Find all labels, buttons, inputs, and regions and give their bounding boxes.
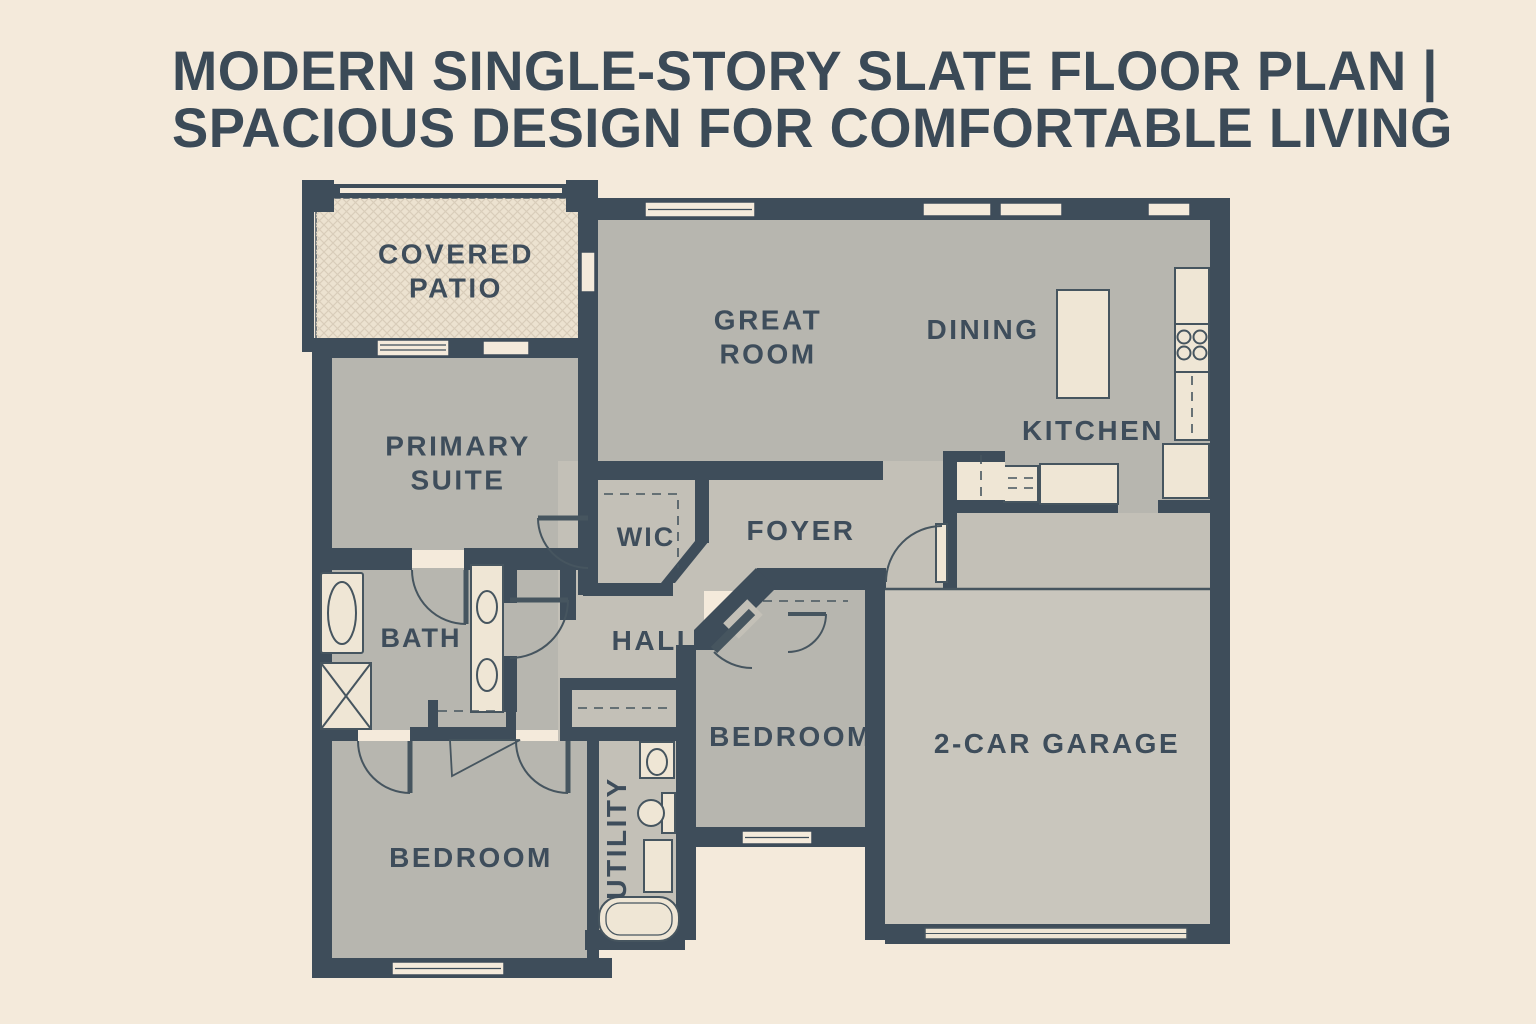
room-fill-mud-hall <box>943 513 1210 589</box>
wall-wic-right <box>695 461 709 543</box>
wall-bedroom-middle-top <box>757 568 886 590</box>
kitchen-cabinet-upper <box>1175 268 1209 324</box>
window-primary-suite <box>483 341 529 355</box>
room-label-kitchen: KITCHEN <box>1022 414 1164 448</box>
wall-wic-bottom <box>583 583 673 596</box>
wall-left <box>312 338 332 978</box>
room-label-primary-suite: PRIMARY SUITE <box>385 429 531 496</box>
wall-kitchen-bottom-stub <box>1158 500 1210 513</box>
wall-bedroom-middle-left <box>676 645 696 940</box>
page-title-line2: SPACIOUS DESIGN FOR COMFORTABLE LIVING <box>172 99 1453 156</box>
wall-vanity-a <box>503 565 517 603</box>
utility-counter <box>644 840 672 892</box>
wall-garage-left <box>865 568 885 940</box>
dishwasher <box>1004 466 1038 502</box>
room-label-hall: HALL <box>612 624 697 658</box>
wall-right <box>1210 198 1230 944</box>
floor-plan-page: MODERN SINGLE-STORY SLATE FLOOR PLAN | S… <box>0 0 1536 1024</box>
room-label-bedroom-left: BEDROOM <box>389 841 553 875</box>
patio-sliding-door <box>377 340 449 356</box>
wall-bath-bottom-c <box>568 727 676 741</box>
room-label-great-room: GREAT ROOM <box>714 303 822 370</box>
wall-linen-left <box>560 678 572 741</box>
window-great-room-left <box>581 252 595 292</box>
patio-screen-line <box>340 188 562 193</box>
wall-suite-top <box>312 338 598 358</box>
kitchen-counter <box>1040 464 1118 504</box>
wall-pantry-top <box>943 451 1005 462</box>
toilet <box>640 742 674 778</box>
window-dining-1 <box>923 203 991 216</box>
wall-suite-bottom-a <box>332 548 412 570</box>
wall-bath-bottom-b <box>410 727 516 741</box>
garage-door <box>925 928 1187 939</box>
wall-patio-left <box>302 184 314 352</box>
entry-door-leaf <box>936 524 947 582</box>
utility-bathtub <box>599 897 679 941</box>
room-label-covered-patio: COVERED PATIO <box>378 237 534 304</box>
room-label-bath: BATH <box>381 622 462 654</box>
kitchen-island <box>1057 290 1109 398</box>
bathtub <box>321 573 363 653</box>
window-dining-2 <box>1000 203 1062 216</box>
double-vanity <box>471 565 503 712</box>
room-label-garage: 2-CAR GARAGE <box>934 727 1180 761</box>
shower <box>321 663 371 729</box>
refrigerator <box>1163 444 1209 498</box>
room-label-utility: UTILITY <box>600 776 634 899</box>
wall-foyer-top <box>592 461 883 480</box>
room-label-bedroom-middle: BEDROOM <box>709 720 873 754</box>
wall-linen-top <box>560 678 676 690</box>
room-label-foyer: FOYER <box>747 514 856 548</box>
wall-utility-left <box>587 741 599 958</box>
room-label-dining: DINING <box>927 313 1040 347</box>
window-kitchen <box>1148 203 1190 216</box>
room-label-wic: WIC <box>617 521 675 553</box>
page-title-line1: MODERN SINGLE-STORY SLATE FLOOR PLAN | <box>172 42 1438 99</box>
stove <box>1175 324 1209 372</box>
